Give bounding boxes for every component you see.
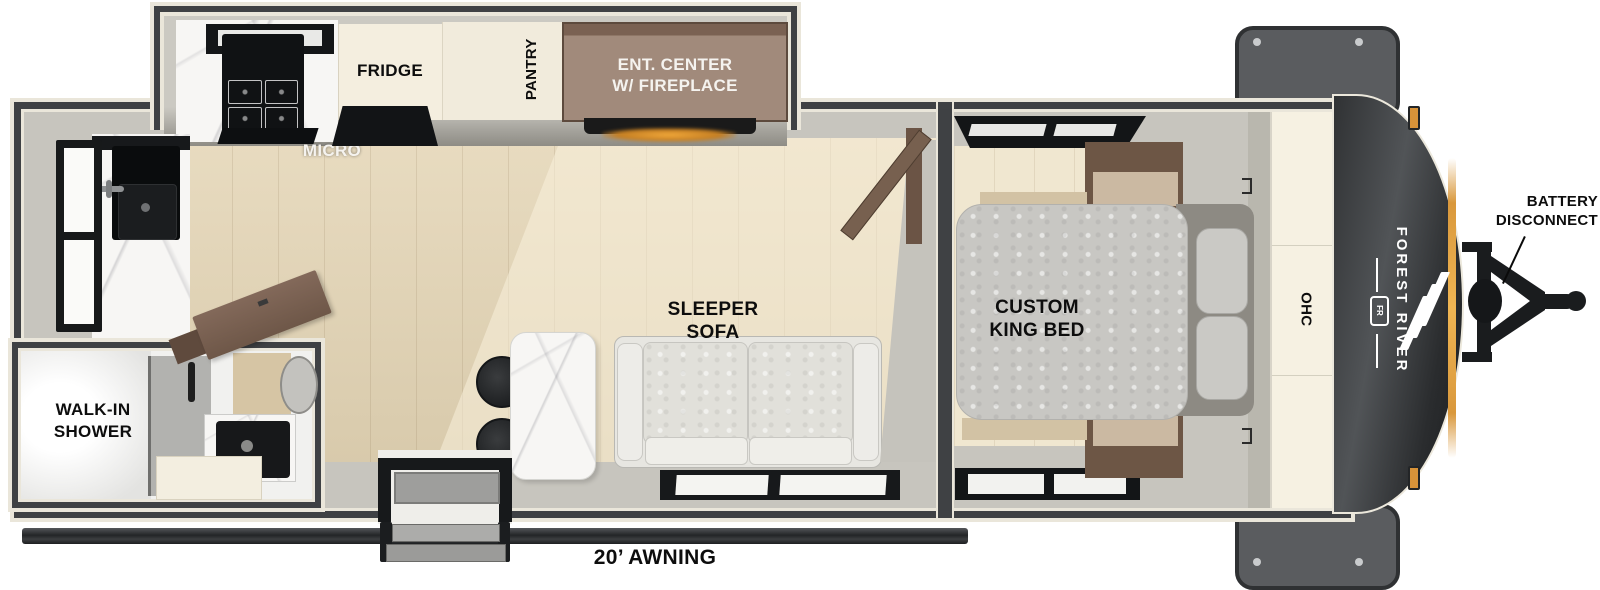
entry-step-tread [386, 544, 506, 562]
ent-center-label-line1: ENT. CENTER [567, 56, 783, 75]
battery-disconnect-label-line2: DISCONNECT [1470, 213, 1598, 230]
pillow [1196, 228, 1248, 314]
bedroom-window-rear-pane [1053, 124, 1116, 136]
bedroom-window-front-pane [968, 474, 1044, 494]
shower-door-handle [188, 362, 195, 402]
floorplan-canvas: 20’ AWNING MICRO FRIDGE PANTRY ENT. CENT… [0, 0, 1600, 590]
sofa-label-line2: SOFA [638, 323, 788, 344]
battery-disconnect-label-line1: BATTERY [1470, 194, 1598, 211]
kitchen-sink-bowl [118, 184, 177, 240]
brand-monogram: FR [1375, 305, 1384, 316]
fridge-door [332, 106, 438, 146]
pillow [1196, 316, 1248, 400]
sleeper-sofa [614, 336, 882, 468]
wardrobe-handle [1242, 428, 1252, 444]
brand-rule [1376, 258, 1378, 292]
vanity-cabinet [156, 456, 262, 500]
cooktop-burners [228, 80, 298, 130]
dinette-table [510, 332, 596, 480]
sofa-armrest-left [617, 343, 643, 461]
bed-label-line1: CUSTOM [962, 298, 1112, 319]
bed-label-line2: KING BED [962, 321, 1112, 342]
rear-window-pane [64, 148, 94, 232]
rear-window-pane [64, 240, 94, 324]
ohc-label: OHC [1297, 279, 1314, 339]
living-window-pane [675, 475, 768, 495]
hitch [1440, 228, 1600, 388]
fireplace-glow [602, 128, 736, 142]
living-window-pane [779, 475, 886, 495]
entry-door-post [499, 458, 512, 522]
sofa-back-cushion [748, 342, 853, 444]
front-storage-top-rivet [1355, 38, 1363, 46]
marker-light [1408, 466, 1420, 490]
shower-label-line2: SHOWER [23, 423, 163, 442]
front-storage-top-rivet [1253, 38, 1261, 46]
kitchen-faucet-stem [106, 180, 112, 198]
sofa-armrest-right [853, 343, 879, 461]
pantry-label: PANTRY [524, 24, 541, 114]
brand-logo: FOREST RIVER [1388, 185, 1410, 415]
pantry [442, 22, 563, 120]
bedroom-divider-wall [936, 102, 954, 518]
sofa-back-cushion [643, 342, 748, 444]
sofa-label-line1: SLEEPER [638, 300, 788, 321]
shower-label-line1: WALK-IN [23, 401, 163, 420]
entry-mat [394, 472, 500, 504]
ent-center-label-line2: W/ FIREPLACE [567, 77, 783, 96]
awning-label: 20’ AWNING [555, 546, 755, 569]
bedroom-window-rear-pane [968, 124, 1046, 136]
fridge-label: FRIDGE [338, 62, 442, 81]
vanity-sink-drain [241, 440, 253, 452]
wardrobe-handle [1242, 178, 1252, 194]
entry-door-lintel [378, 458, 512, 470]
front-storage-bottom-rivet [1355, 558, 1363, 566]
sofa-seat-cushion [645, 437, 748, 465]
entry-door-post [378, 458, 391, 522]
kitchen-sink-drain [141, 203, 150, 212]
bed-platform [962, 418, 1087, 440]
sofa-seat-cushion [749, 437, 852, 465]
marker-light [1408, 106, 1420, 130]
brand-crest: FR [1370, 296, 1389, 326]
entry-step-tread [392, 524, 500, 542]
nightstand-rear-top [1093, 172, 1178, 206]
front-storage-bottom-rivet [1253, 558, 1261, 566]
toilet [280, 356, 318, 414]
brand-rule [1376, 334, 1378, 368]
